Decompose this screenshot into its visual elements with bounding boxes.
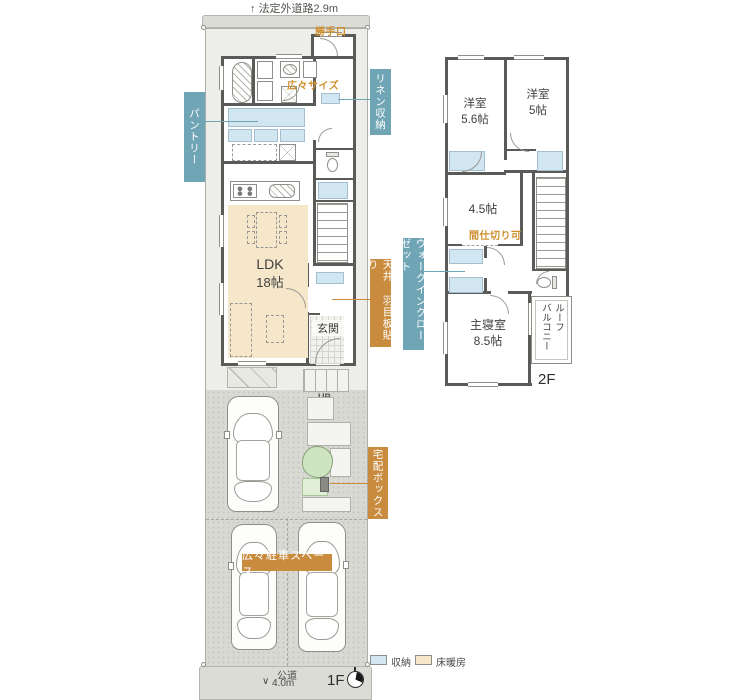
wall — [306, 313, 320, 315]
toilet-icon — [327, 158, 338, 172]
bath-counter — [257, 61, 273, 79]
window — [443, 95, 448, 123]
window — [458, 55, 484, 60]
window — [219, 215, 224, 247]
staircase-2f — [536, 177, 566, 269]
wall — [313, 263, 356, 266]
window — [443, 322, 448, 354]
compass-icon — [347, 671, 364, 688]
window — [468, 382, 498, 387]
stove-icon — [233, 184, 257, 198]
compass-needle — [348, 672, 363, 687]
car-rear-window — [237, 617, 270, 639]
parking-divider — [287, 518, 288, 666]
sofa-table-dashed — [266, 315, 284, 343]
leader-line — [423, 271, 465, 272]
north-road-text: 法定外道路2.9m — [259, 3, 338, 15]
car-rear-window — [234, 481, 272, 501]
genkan-label: 玄関 — [312, 320, 344, 336]
bedroom1-name: 洋室 — [453, 97, 497, 113]
hall-storage — [318, 182, 348, 199]
wall — [252, 56, 255, 105]
boundary-pin — [201, 662, 206, 667]
master-name: 主寝室 — [462, 317, 514, 333]
wic-shelf — [449, 249, 483, 264]
pantry-counter — [228, 108, 305, 127]
car-roof — [239, 572, 269, 616]
room45-label: 4.5帖 — [460, 201, 506, 217]
legend-heating-swatch — [415, 655, 432, 665]
parking-divider — [206, 519, 367, 520]
wall — [313, 178, 356, 180]
chair-dashed — [247, 215, 255, 228]
wall — [445, 172, 506, 175]
window — [219, 283, 224, 315]
leader-line — [330, 483, 369, 484]
car-roof — [236, 440, 270, 481]
window — [514, 55, 544, 60]
wall — [498, 244, 523, 246]
delivery-box-icon — [320, 477, 329, 492]
legend-heating-label: 床暖房 — [436, 654, 466, 669]
bedroom1-label: 洋室 5.6帖 — [453, 97, 497, 128]
wall — [313, 148, 356, 150]
sofa-dashed — [230, 303, 252, 357]
chair-dashed — [279, 215, 287, 228]
pantry-shelf — [280, 129, 305, 142]
car-left — [231, 524, 277, 650]
callout-wic: ウォークインクローゼット — [403, 238, 424, 350]
down-arrow-icon: ∨ — [262, 676, 269, 687]
leader-line — [205, 121, 258, 122]
utility-area — [307, 397, 334, 420]
wic-shelf — [449, 277, 483, 293]
utility-area — [302, 497, 351, 512]
wall — [221, 103, 316, 106]
car-top — [227, 396, 279, 512]
wall — [221, 161, 316, 164]
bath-size-note: 広々サイズ — [287, 77, 339, 92]
shoe-cabinet — [316, 272, 344, 284]
staircase-1f — [317, 203, 348, 263]
washer-pan — [303, 61, 317, 78]
bedroom2-label: 洋室 5帖 — [518, 88, 558, 119]
callout-parking: 広々駐車スペース — [242, 554, 332, 571]
balcony-label-roof: ルーフ — [551, 303, 565, 343]
vanity-sink — [283, 64, 297, 75]
car-mirror — [343, 561, 349, 569]
master-label: 主寝室 8.5帖 — [462, 317, 514, 349]
wall — [313, 200, 356, 202]
leader-line — [338, 99, 371, 100]
balcony-label-balcony: バルコニー — [538, 303, 552, 363]
entry-steps — [303, 369, 349, 392]
pantry-shelf — [254, 129, 278, 142]
closet-dashed — [232, 144, 277, 161]
callout-ceiling: 天井 羽目板貼り — [370, 259, 391, 347]
bedroom2-name: 洋室 — [518, 88, 558, 104]
window — [238, 361, 266, 366]
backdoor-note: 勝手口 — [315, 23, 347, 38]
up-arrow-icon: ↑ — [250, 3, 256, 15]
wall — [313, 140, 316, 266]
porch-deck — [227, 367, 277, 388]
callout-linen: リネン収納 — [370, 69, 391, 135]
window — [276, 54, 302, 59]
car-mirror — [224, 431, 230, 439]
wall — [532, 172, 535, 269]
car-mirror — [276, 431, 282, 439]
car-rear-window — [305, 618, 340, 640]
legend-storage-swatch — [370, 655, 387, 665]
floorplan-canvas: ↑ 法定外道路2.9m — [0, 0, 750, 700]
car-mirror — [228, 562, 234, 570]
window — [219, 66, 224, 90]
legend-storage-label: 収納 — [391, 654, 411, 669]
chair-dashed — [247, 231, 255, 244]
floor1-label: 1F — [327, 672, 345, 689]
utility-area — [330, 448, 351, 477]
pantry-shelf — [228, 129, 252, 142]
utility-area — [307, 422, 351, 446]
master-size: 8.5帖 — [462, 333, 514, 349]
floor2-label: 2F — [538, 371, 556, 388]
bath-counter — [257, 81, 273, 101]
chair-dashed — [279, 231, 287, 244]
callout-delivery-box: 宅配ボックス — [368, 447, 388, 519]
wall — [445, 244, 462, 246]
toilet-tank — [326, 152, 339, 157]
wall — [504, 57, 507, 160]
bedroom1-size: 5.6帖 — [453, 113, 497, 129]
closet-bedroom2 — [537, 151, 563, 171]
window — [443, 198, 448, 226]
toilet-tank — [552, 276, 557, 289]
bathtub — [232, 62, 252, 103]
partition-note: 間仕切り可 — [469, 227, 522, 242]
callout-pantry: パントリー — [184, 92, 205, 182]
bedroom2-size: 5帖 — [518, 104, 558, 120]
wall — [532, 269, 569, 271]
compass-north-tick — [354, 667, 356, 671]
south-road-width: 4.0m — [272, 678, 294, 689]
tree-icon — [302, 446, 333, 478]
partition-dashed-line — [462, 245, 498, 246]
ldk-room-label: LDK 18帖 — [240, 255, 300, 291]
dining-table-dashed — [256, 212, 277, 248]
kitchen-sink — [269, 184, 295, 198]
car-right — [298, 522, 346, 652]
utility-box — [279, 144, 296, 161]
north-road-label: ↑ 法定外道路2.9m — [250, 0, 338, 16]
ldk-name: LDK — [240, 255, 300, 274]
